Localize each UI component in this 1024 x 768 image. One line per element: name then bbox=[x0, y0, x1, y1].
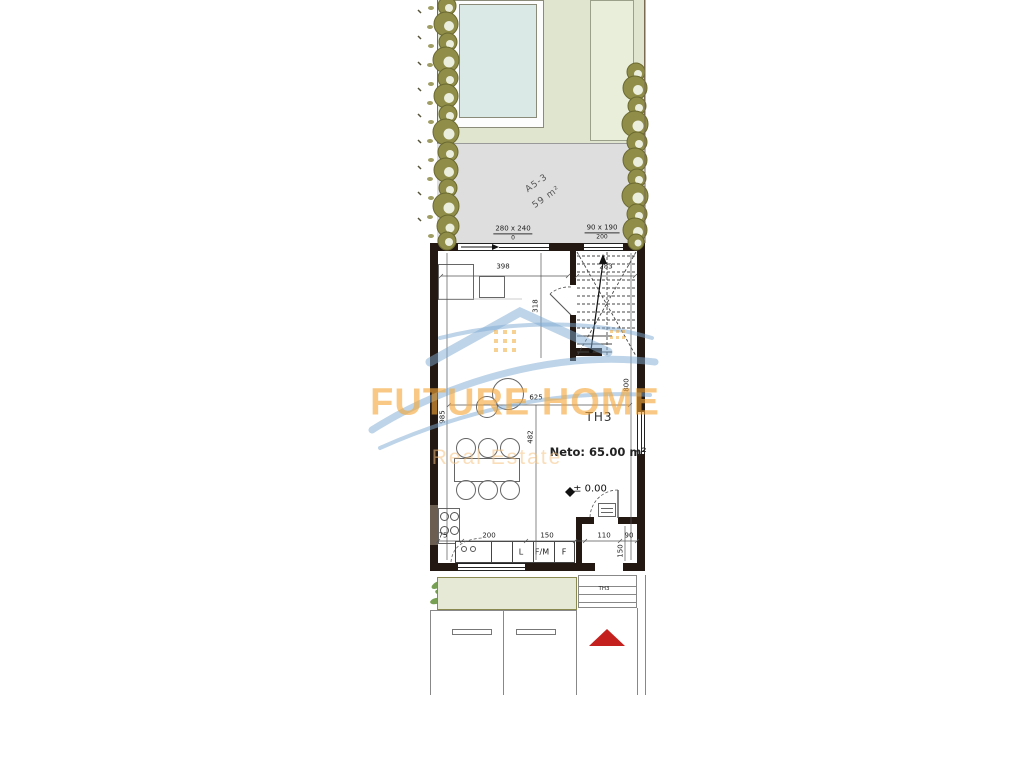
window-stair-band bbox=[584, 243, 623, 251]
dining-chair bbox=[500, 480, 520, 500]
counter-divider bbox=[491, 542, 492, 562]
burner bbox=[450, 526, 459, 535]
window-stair-size: 90 x 190 bbox=[585, 223, 620, 233]
step-line bbox=[579, 594, 636, 595]
wc-sink-line bbox=[601, 512, 613, 513]
window-terrace-band bbox=[458, 243, 549, 251]
window-stair-line bbox=[584, 247, 623, 248]
dim-482: 482 bbox=[528, 430, 535, 443]
neighbor-strip bbox=[590, 0, 634, 141]
wall-right bbox=[637, 243, 645, 571]
dim-110: 110 bbox=[597, 533, 610, 540]
pool bbox=[459, 4, 537, 118]
dim-75: 75 bbox=[439, 533, 448, 540]
dim-200: 200 bbox=[482, 533, 495, 540]
kitchen-cell-f: F bbox=[562, 548, 567, 557]
hedge-left bbox=[427, 6, 434, 238]
dining-table bbox=[454, 458, 520, 482]
dim-283: 283 bbox=[599, 264, 612, 271]
kitchen-counter bbox=[455, 541, 575, 563]
entry-walk-line bbox=[637, 608, 638, 695]
parking-line-left bbox=[430, 610, 431, 695]
burner bbox=[450, 512, 459, 521]
dim-150-vertical: 150 bbox=[618, 544, 625, 557]
dining-chair bbox=[456, 438, 476, 458]
window-kitchen-line bbox=[458, 567, 525, 568]
wheel-stop bbox=[452, 629, 492, 635]
unit-name-label: TH3 bbox=[586, 410, 613, 424]
dining-chair bbox=[456, 480, 476, 500]
window-stair-sill: 200 bbox=[585, 233, 620, 241]
dining-chair bbox=[478, 480, 498, 500]
dim-150: 150 bbox=[540, 533, 553, 540]
window-terrace-sill: 0 bbox=[493, 234, 532, 242]
parking-line-right bbox=[576, 610, 577, 695]
sofa bbox=[438, 264, 474, 300]
window-terrace-label: 280 x 240 0 bbox=[493, 224, 532, 241]
window-terrace-line bbox=[499, 247, 549, 248]
kitchen-cell-fm: F/M bbox=[535, 548, 549, 557]
floor-plan-canvas: A5-3 59 m² L F/M F bbox=[0, 0, 1024, 768]
counter-divider bbox=[533, 542, 534, 562]
window-stair-label: 90 x 190 200 bbox=[585, 223, 620, 240]
step-line bbox=[579, 602, 636, 603]
wall-vestibule-top-b bbox=[618, 517, 637, 524]
dim-398: 398 bbox=[496, 264, 509, 271]
wall-stair-landing bbox=[570, 348, 602, 356]
entry-unit-label: TH3 bbox=[599, 586, 610, 592]
kitchen-cell-l: L bbox=[519, 548, 523, 557]
wc-sink-line bbox=[601, 508, 613, 509]
wc-sink bbox=[598, 503, 616, 517]
burner bbox=[440, 512, 449, 521]
site-edge-line bbox=[645, 575, 646, 695]
red-arrow-icon bbox=[589, 629, 625, 646]
planter-strip bbox=[437, 577, 577, 610]
dim-985: 985 bbox=[440, 410, 447, 423]
wall-left-segment bbox=[430, 505, 438, 545]
dining-chair bbox=[500, 438, 520, 458]
window-kitchen-band bbox=[458, 563, 525, 571]
elevation-label: ± 0.00 bbox=[573, 484, 607, 495]
counter-divider bbox=[512, 542, 513, 562]
sink-bowl bbox=[470, 546, 476, 552]
dim-625: 625 bbox=[529, 395, 542, 402]
unit-net-area-label: Neto: 65.00 m² bbox=[550, 445, 647, 459]
parking-divider bbox=[503, 610, 504, 695]
boundary-ticks bbox=[418, 10, 421, 221]
wall-vestibule-top-a bbox=[582, 517, 594, 524]
dim-318: 318 bbox=[533, 299, 540, 312]
wheel-stop bbox=[516, 629, 556, 635]
round-table-chair bbox=[476, 396, 498, 418]
sink-bowl bbox=[461, 546, 467, 552]
counter-divider bbox=[554, 542, 555, 562]
coffee-table bbox=[479, 276, 505, 298]
dim-90: 90 bbox=[625, 533, 634, 540]
dining-chair bbox=[478, 438, 498, 458]
window-terrace-size: 280 x 240 bbox=[493, 224, 532, 234]
dim-800: 800 bbox=[624, 378, 631, 391]
wall-stair-upper bbox=[570, 251, 576, 285]
entry-door-gap bbox=[595, 563, 623, 571]
